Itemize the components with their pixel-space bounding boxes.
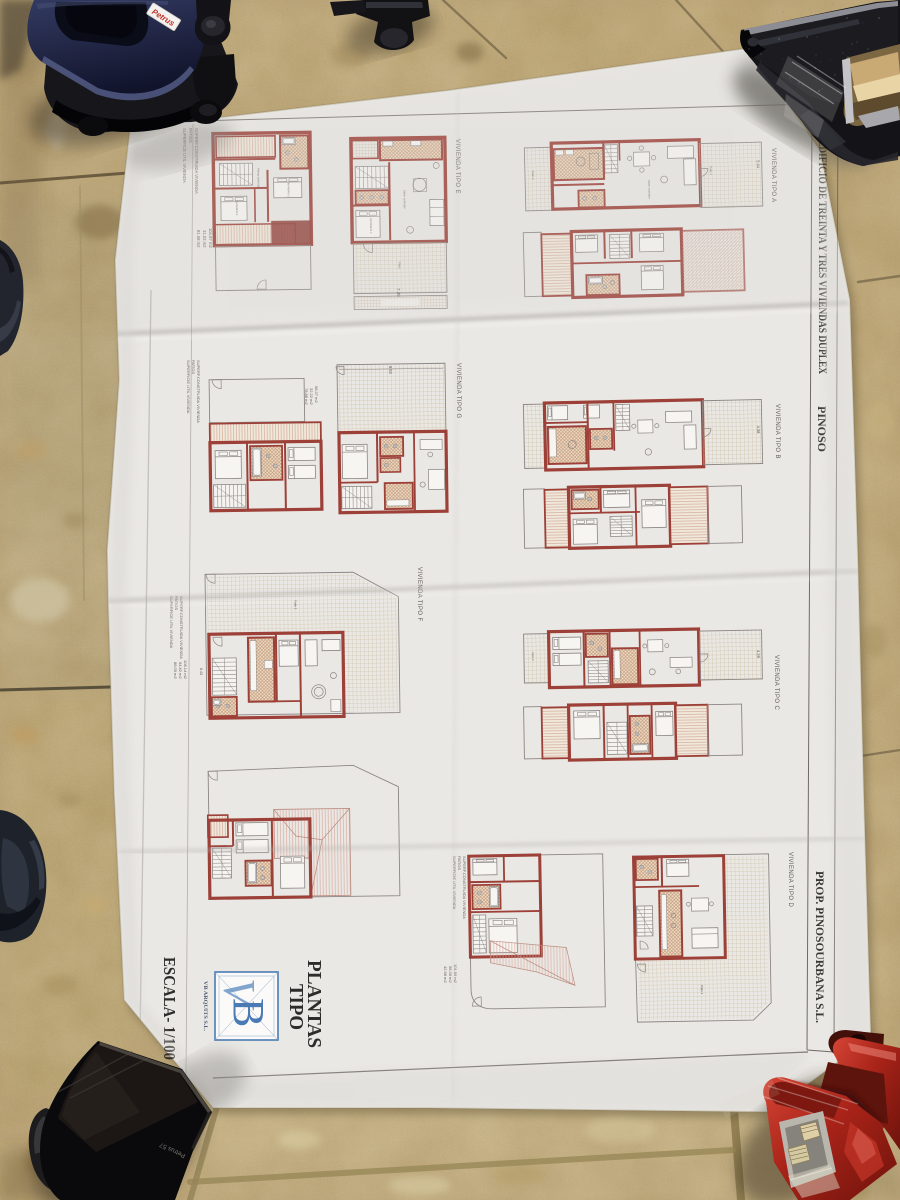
svg-text:VB ARQUITS S.L.: VB ARQUITS S.L. (202, 981, 207, 1032)
svg-text:Patio 2: Patio 2 (531, 652, 535, 661)
svg-text:6.43: 6.43 (199, 668, 203, 675)
svg-text:8.50: 8.50 (388, 366, 393, 375)
svg-text:VIVIENDA TIPO G: VIVIENDA TIPO G (455, 363, 461, 419)
svg-text:PATIOS: PATIOS (457, 856, 462, 870)
svg-text:B: B (224, 998, 273, 1027)
svg-text:Patio 1: Patio 1 (700, 985, 704, 995)
svg-text:VIVIENDA TIPO D: VIVIENDA TIPO D (787, 852, 793, 908)
svg-text:108.14 m2: 108.14 m2 (183, 660, 188, 680)
svg-text:88.05 m2: 88.05 m2 (173, 662, 178, 679)
svg-text:4.28: 4.28 (756, 650, 761, 659)
svg-text:TIPO: TIPO (285, 984, 307, 1030)
svg-text:78.88 m2: 78.88 m2 (304, 388, 309, 405)
svg-text:SUPERF.CONSTRUIDA VIVIENDA: SUPERF.CONSTRUIDA VIVIENDA (179, 596, 184, 659)
svg-text:64.82 m2: 64.82 m2 (178, 662, 183, 679)
svg-text:VIVIENDA TIPO C: VIVIENDA TIPO C (773, 655, 779, 711)
svg-text:4.38: 4.38 (756, 426, 761, 435)
svg-text:SUPERF.CONSTRUIDA VIVIENDA: SUPERF.CONSTRUIDA VIVIENDA (196, 360, 201, 423)
svg-text:SUPERFICIE UTIL VIVIENDA: SUPERFICIE UTIL VIVIENDA (186, 360, 191, 414)
svg-text:Patio 1: Patio 1 (293, 600, 297, 610)
svg-text:SUPERF.CONSTRUIDA VIVIENDA: SUPERF.CONSTRUIDA VIVIENDA (462, 856, 467, 919)
svg-text:42.98 m2: 42.98 m2 (443, 966, 448, 983)
svg-text:32.22 m2: 32.22 m2 (309, 388, 314, 405)
svg-text:PATIOS: PATIOS (191, 360, 196, 374)
svg-text:98.37 m2: 98.37 m2 (314, 386, 319, 403)
svg-text:PROP. PINOSOURBANA S.L.: PROP. PINOSOURBANA S.L. (813, 871, 827, 1023)
svg-text:VIVIENDA TIPO B: VIVIENDA TIPO B (774, 404, 780, 459)
